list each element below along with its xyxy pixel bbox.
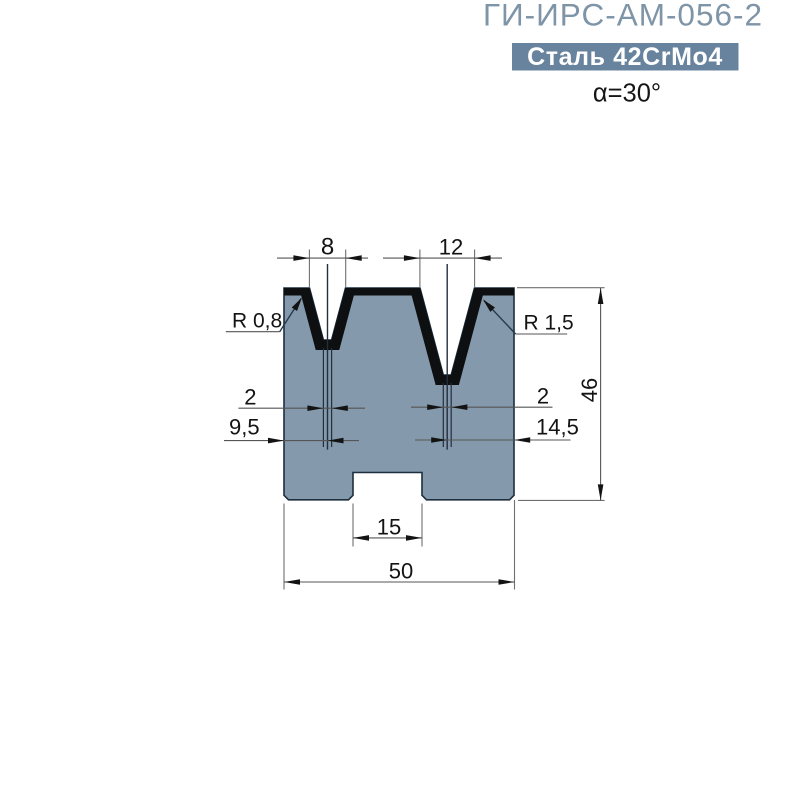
svg-text:9,5: 9,5 xyxy=(229,415,260,440)
svg-text:α=30°: α=30° xyxy=(593,79,661,107)
svg-text:2: 2 xyxy=(537,383,549,408)
svg-text:R 0,8: R 0,8 xyxy=(232,310,282,333)
svg-text:12: 12 xyxy=(439,235,463,260)
svg-text:15: 15 xyxy=(377,514,401,539)
svg-text:14,5: 14,5 xyxy=(536,415,579,440)
svg-text:ГИ-ИРС-АМ-056-2: ГИ-ИРС-АМ-056-2 xyxy=(483,0,763,32)
svg-text:8: 8 xyxy=(321,234,334,261)
svg-text:R 1,5: R 1,5 xyxy=(524,312,574,335)
svg-text:50: 50 xyxy=(389,559,413,584)
svg-text:Сталь 42CrMo4: Сталь 42CrMo4 xyxy=(527,43,723,71)
svg-text:2: 2 xyxy=(244,384,256,409)
svg-text:46: 46 xyxy=(577,378,602,402)
